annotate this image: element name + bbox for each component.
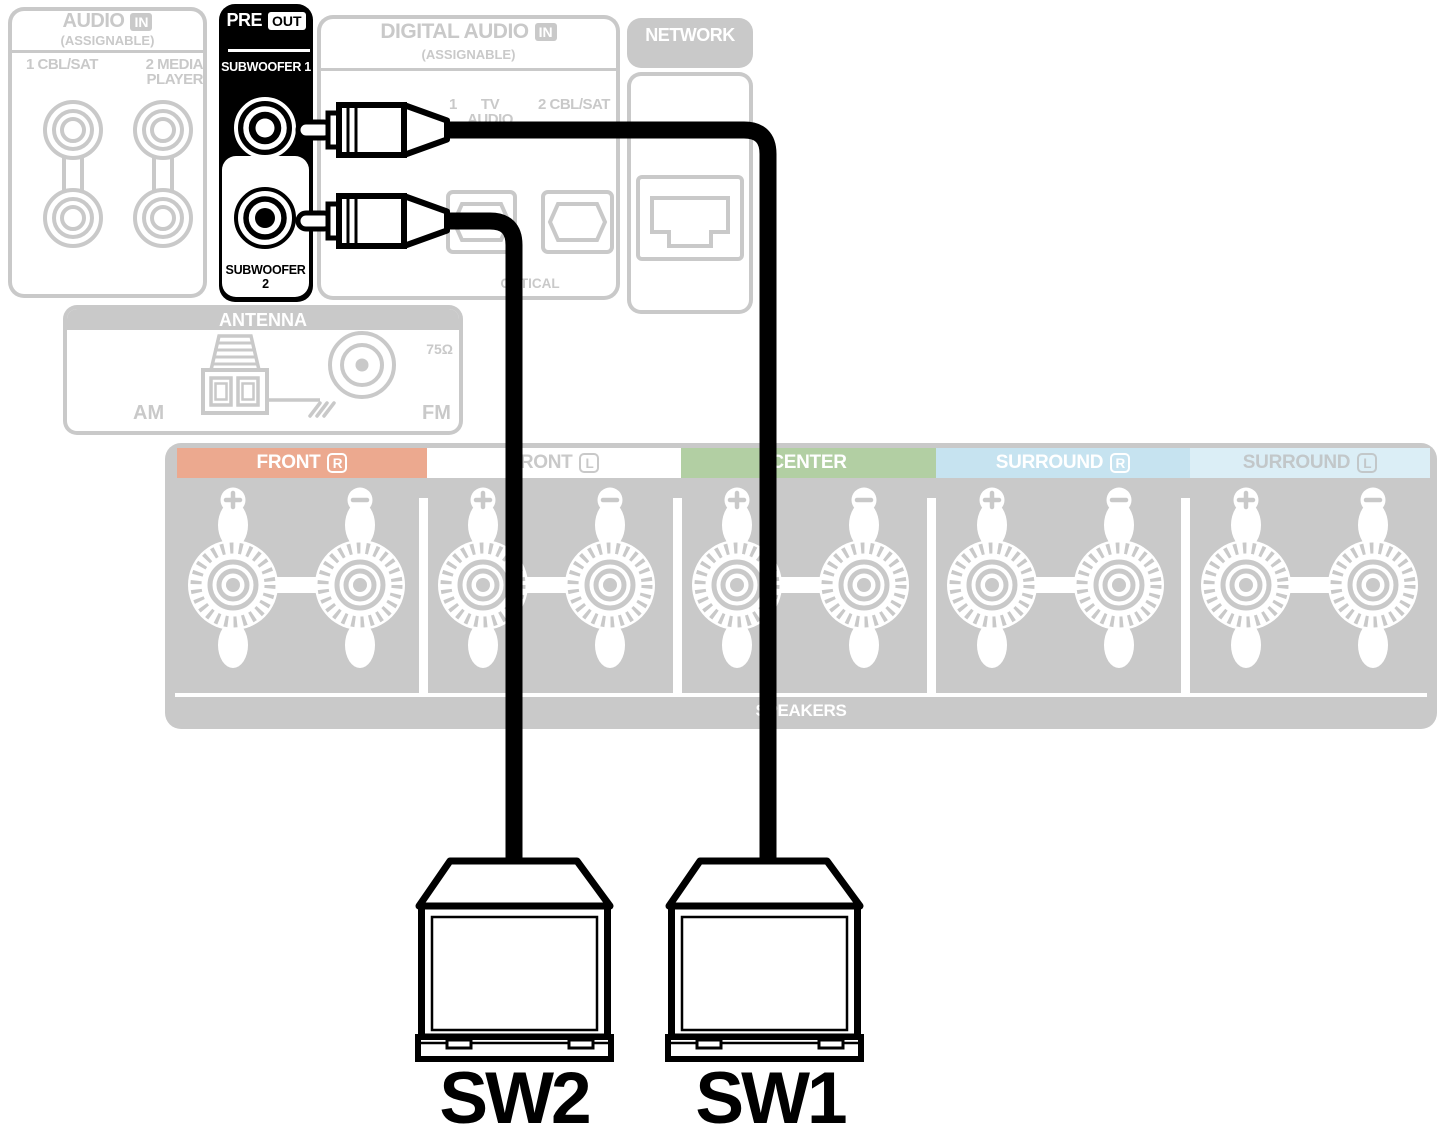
binding-post bbox=[565, 502, 655, 668]
plus-icon bbox=[1234, 488, 1259, 513]
binding-post bbox=[1328, 502, 1418, 668]
audio-in-jacks bbox=[45, 102, 191, 246]
rca-jack-media-player bbox=[135, 102, 191, 158]
diagram-shapes-layer bbox=[0, 0, 1440, 1138]
binding-posts bbox=[188, 488, 1418, 669]
minus-icon bbox=[852, 488, 877, 513]
plus-icon bbox=[471, 488, 496, 513]
plus-icon bbox=[980, 488, 1005, 513]
ground-symbol bbox=[267, 400, 334, 416]
rca-plug-subwoofer2 bbox=[298, 196, 447, 246]
minus-icon bbox=[348, 488, 373, 513]
minus-icon bbox=[1361, 488, 1386, 513]
subwoofer2-jack bbox=[236, 189, 294, 247]
subwoofer-sw1-box bbox=[668, 861, 861, 1059]
rca-jack-cbl-sat-2 bbox=[45, 190, 101, 246]
binding-post bbox=[947, 502, 1037, 668]
ethernet-port bbox=[638, 177, 742, 259]
plus-icon bbox=[221, 488, 246, 513]
binding-post bbox=[1201, 502, 1291, 668]
binding-post bbox=[819, 502, 909, 668]
binding-post bbox=[1074, 502, 1164, 668]
binding-post bbox=[188, 502, 278, 668]
subwoofer-connection-diagram: AUDIO IN (ASSIGNABLE) 1 CBL/SAT 2 MEDIA … bbox=[0, 0, 1440, 1138]
binding-post bbox=[315, 502, 405, 668]
minus-icon bbox=[598, 488, 623, 513]
rca-jack-cbl-sat bbox=[45, 102, 101, 158]
am-terminal bbox=[203, 336, 267, 413]
plus-icon bbox=[725, 488, 750, 513]
rca-jack-media-player-2 bbox=[135, 190, 191, 246]
optical-port-2 bbox=[543, 192, 612, 252]
rca-plug-subwoofer1 bbox=[298, 105, 447, 155]
minus-icon bbox=[1107, 488, 1132, 513]
fm-coax-connector bbox=[330, 333, 394, 397]
subwoofer1-jack bbox=[236, 99, 294, 157]
subwoofer-sw2-box bbox=[418, 861, 611, 1059]
